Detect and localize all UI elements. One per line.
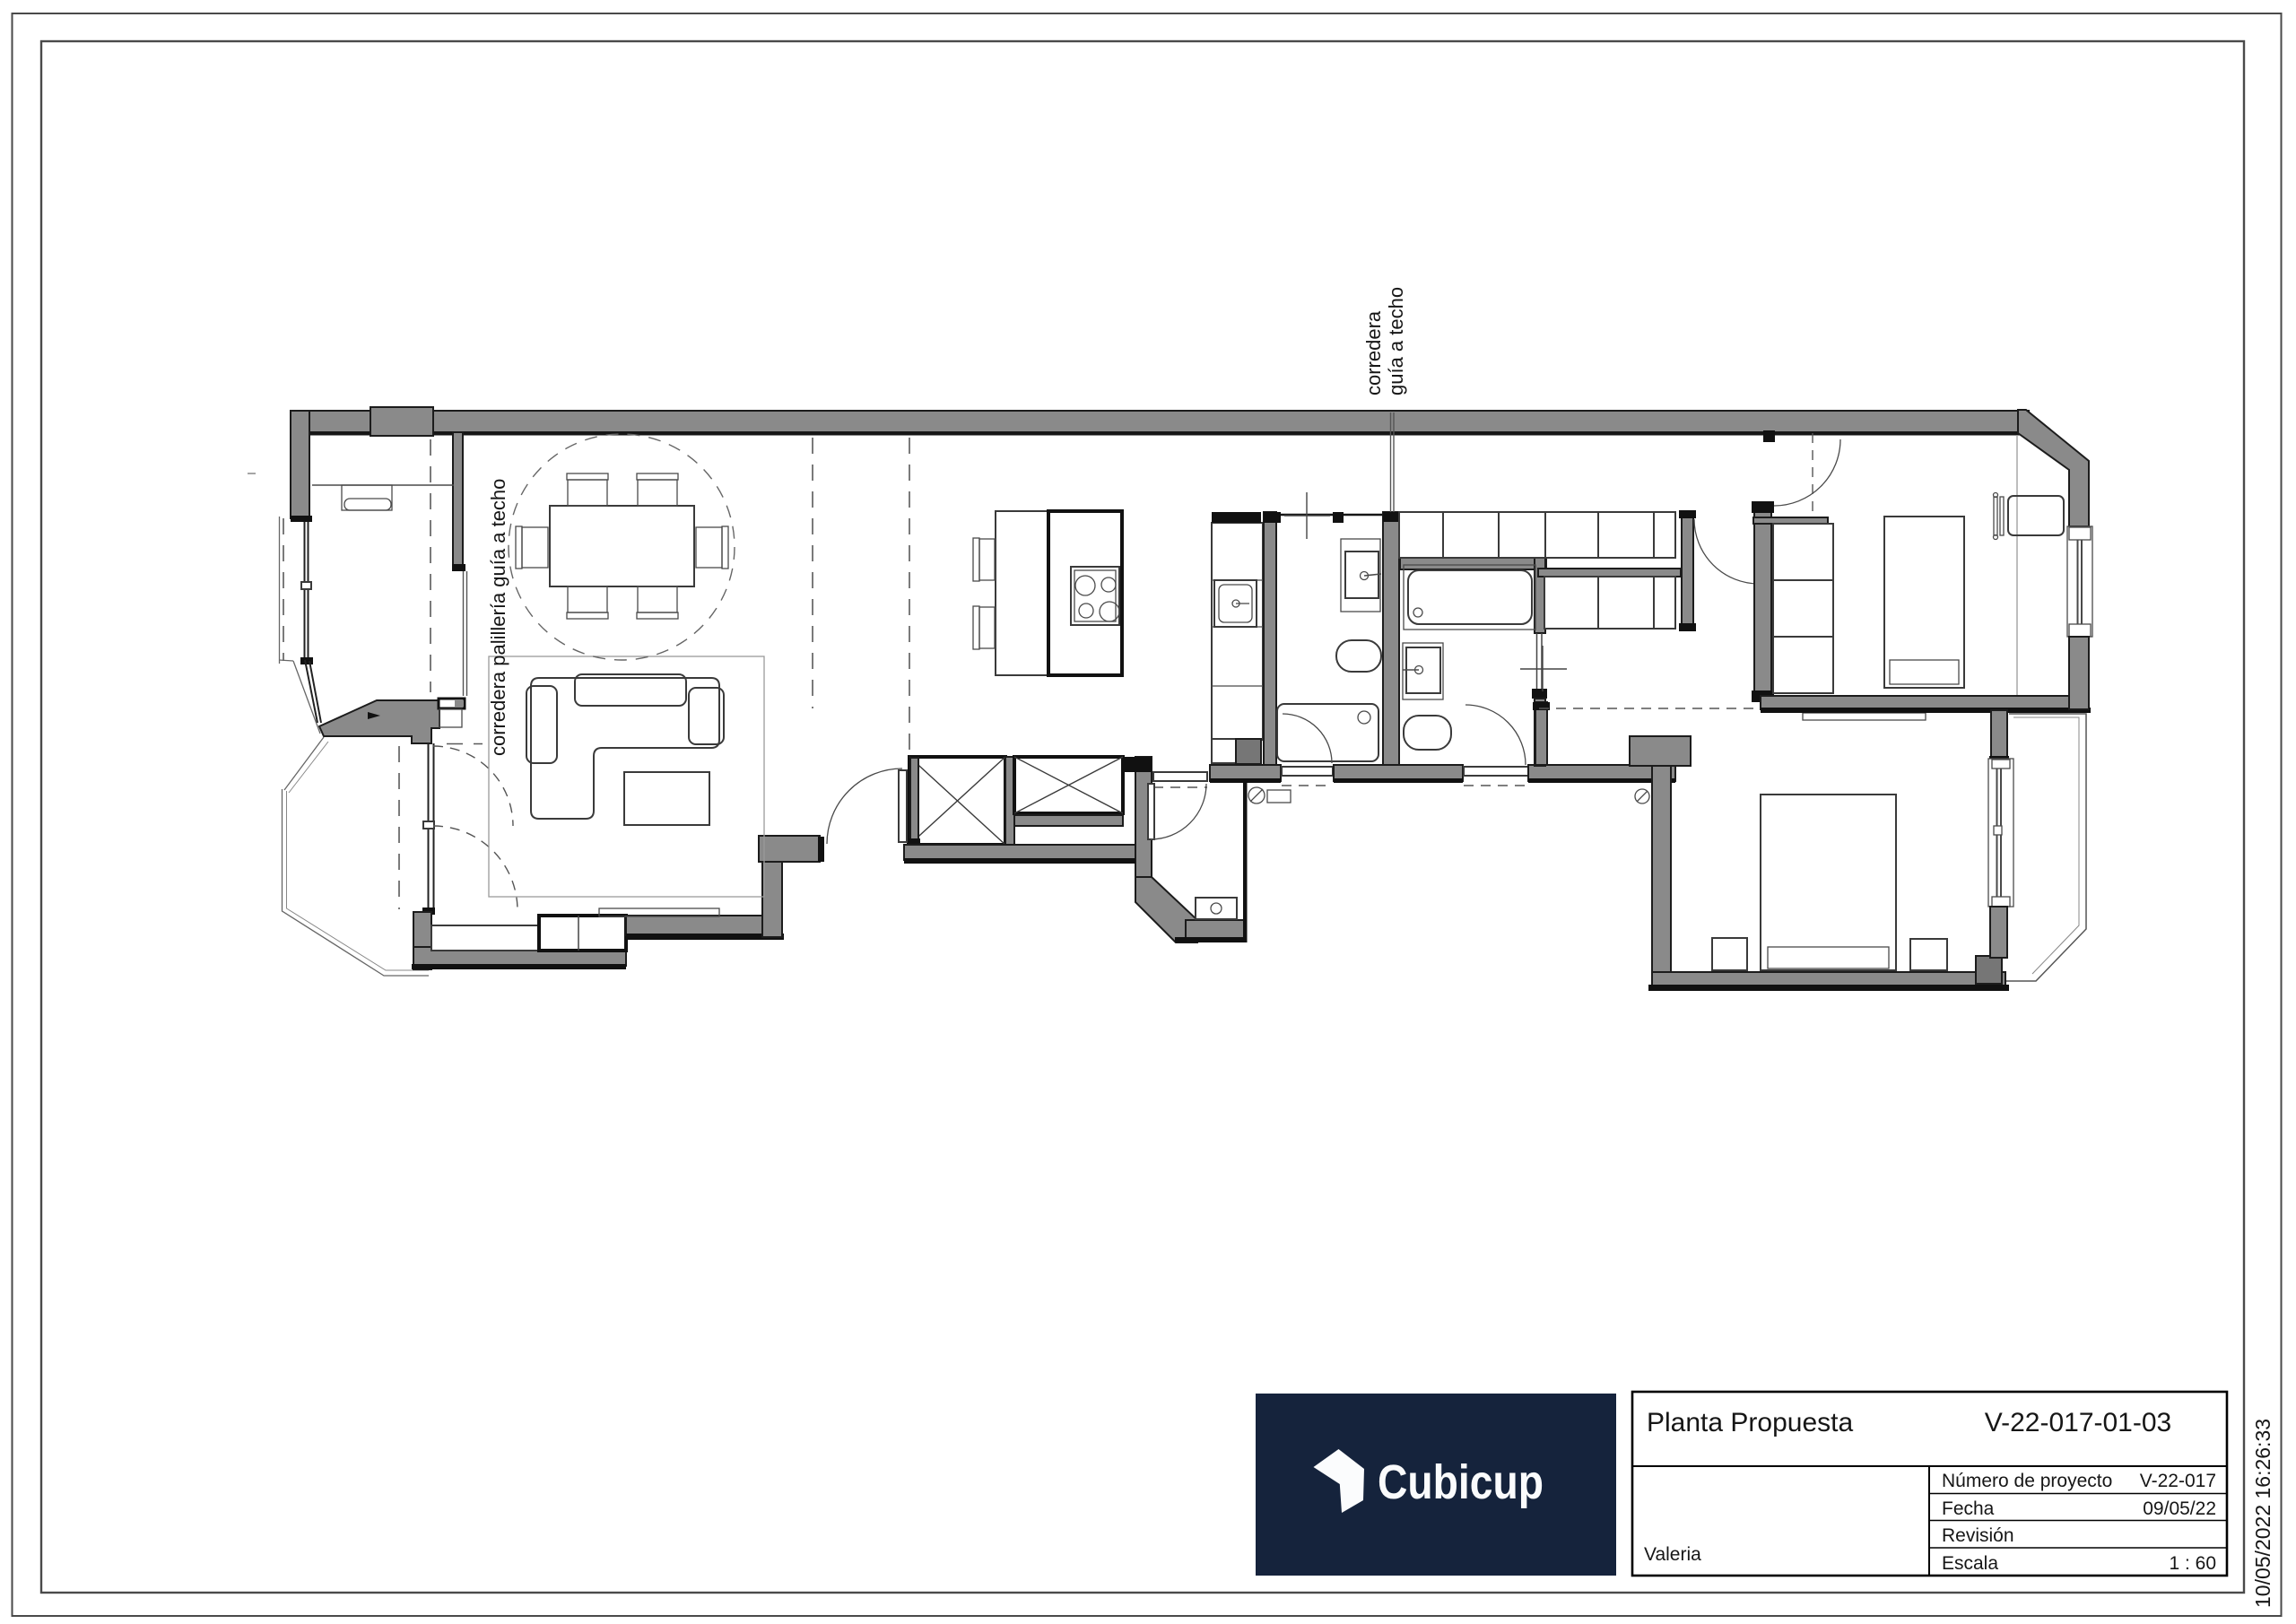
svg-text:Escala: Escala bbox=[1942, 1553, 1998, 1574]
svg-text:Valeria: Valeria bbox=[1644, 1544, 1701, 1565]
svg-text:Planta Propuesta: Planta Propuesta bbox=[1647, 1408, 1853, 1437]
svg-text:V-22-017: V-22-017 bbox=[2140, 1471, 2216, 1491]
svg-text:corredera palillería guía a te: corredera palillería guía a techo bbox=[487, 479, 509, 756]
svg-text:09/05/22: 09/05/22 bbox=[2143, 1498, 2216, 1519]
svg-text:guía a techo: guía a techo bbox=[1385, 287, 1407, 395]
svg-text:Fecha: Fecha bbox=[1942, 1498, 1995, 1519]
svg-text:Revisión: Revisión bbox=[1942, 1525, 2014, 1546]
svg-text:Cubicup: Cubicup bbox=[1378, 1455, 1544, 1509]
svg-text:1 : 60: 1 : 60 bbox=[2169, 1553, 2216, 1574]
svg-text:corredera: corredera bbox=[1362, 310, 1385, 395]
svg-text:V-22-017-01-03: V-22-017-01-03 bbox=[1985, 1408, 2171, 1437]
svg-text:10/05/2022 16:26:33: 10/05/2022 16:26:33 bbox=[2251, 1419, 2274, 1608]
svg-text:Número de proyecto: Número de proyecto bbox=[1942, 1471, 2112, 1491]
